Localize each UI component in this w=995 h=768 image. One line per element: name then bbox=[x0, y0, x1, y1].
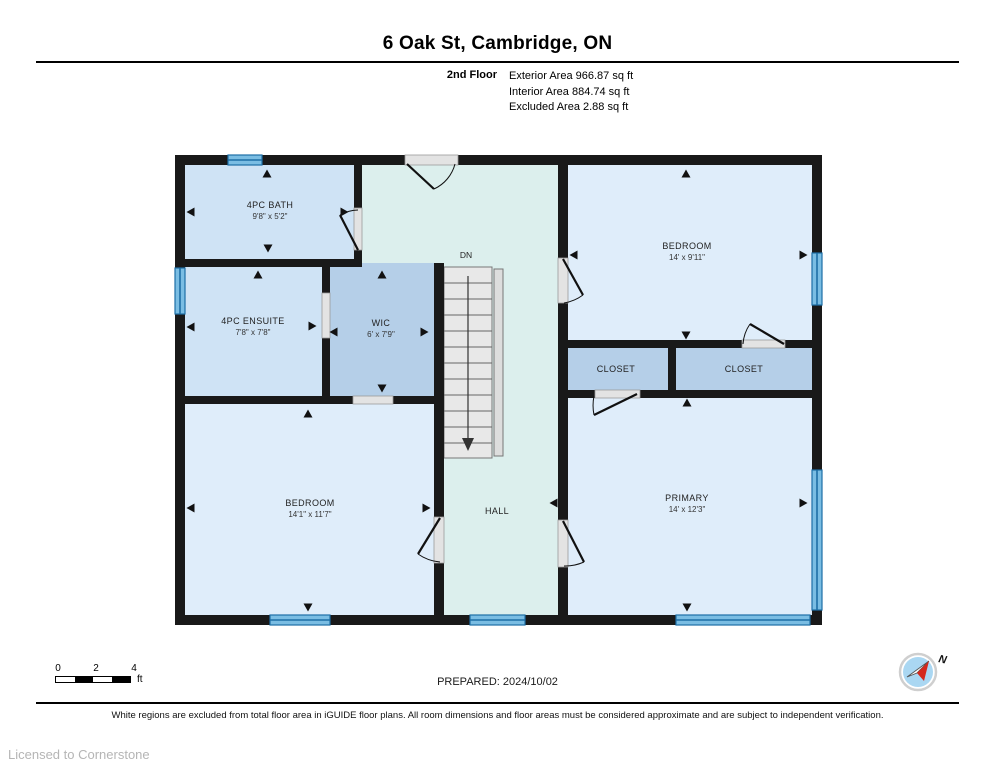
interior-area: Interior Area 884.74 sq ft bbox=[509, 85, 633, 101]
room-label-closet-l: CLOSET bbox=[597, 364, 636, 374]
room-dims-wic: 6' x 7'9" bbox=[367, 330, 395, 339]
room-label-hall: HALL bbox=[485, 506, 509, 516]
room-label-closet-r: CLOSET bbox=[725, 364, 764, 374]
room-dims-bath: 9'8" x 5'2" bbox=[253, 212, 288, 221]
stairs-handrail bbox=[494, 269, 503, 456]
room-label-bath: 4PC BATH bbox=[247, 200, 294, 210]
room-label-wic: WIC bbox=[372, 318, 391, 328]
scale-tick-4: 4 bbox=[131, 663, 137, 674]
excluded-area: Excluded Area 2.88 sq ft bbox=[509, 100, 633, 116]
window-bottom-hall bbox=[470, 615, 525, 625]
room-dims-bedroom-tr: 14' x 9'11" bbox=[669, 253, 705, 262]
compass-icon: N bbox=[894, 647, 952, 695]
area-summary: Exterior Area 966.87 sq ft Interior Area… bbox=[509, 69, 633, 116]
room-dims-bedroom-bl: 14'1" x 11'7" bbox=[288, 510, 331, 519]
window-bottom-primary bbox=[676, 615, 810, 625]
room-label-ensuite: 4PC ENSUITE bbox=[221, 316, 284, 326]
scale-tick-2: 2 bbox=[93, 663, 99, 674]
stairs bbox=[444, 267, 503, 458]
window-left-ensuite bbox=[175, 268, 185, 314]
room-label-primary: PRIMARY bbox=[665, 493, 709, 503]
window-top-bath bbox=[228, 155, 262, 165]
cased-opening-wic-bedroom bbox=[353, 396, 393, 404]
prepared-date: PREPARED: 2024/10/02 bbox=[0, 676, 995, 688]
window-right-primary bbox=[812, 470, 822, 610]
scale-tick-0: 0 bbox=[55, 663, 61, 674]
cased-opening-ensuite-wic bbox=[322, 293, 330, 338]
floorplan-page: 6 Oak St, Cambridge, ON 2nd Floor Exteri… bbox=[0, 0, 995, 768]
footer-divider bbox=[36, 702, 959, 704]
license-text: Licensed to Cornerstone bbox=[8, 747, 150, 762]
floor-label: 2nd Floor bbox=[447, 69, 497, 81]
disclaimer-text: White regions are excluded from total fl… bbox=[0, 710, 995, 721]
door-opening-hall-top bbox=[405, 155, 458, 165]
window-right-bedroom bbox=[812, 253, 822, 305]
floor-plan: 4PC BATH 9'8" x 5'2" 4PC ENSUITE 7'8" x … bbox=[170, 148, 830, 633]
page-title: 6 Oak St, Cambridge, ON bbox=[0, 33, 995, 55]
room-dims-ensuite: 7'8" x 7'8" bbox=[236, 328, 271, 337]
header-divider bbox=[36, 61, 959, 63]
stairs-dn-label: DN bbox=[460, 250, 472, 260]
room-label-bedroom-tr: BEDROOM bbox=[662, 241, 711, 251]
exterior-area: Exterior Area 966.87 sq ft bbox=[509, 69, 633, 85]
compass-north-label: N bbox=[937, 653, 948, 667]
room-label-bedroom-bl: BEDROOM bbox=[285, 498, 334, 508]
room-dims-primary: 14' x 12'3" bbox=[669, 505, 706, 514]
window-bottom-bedroom bbox=[270, 615, 330, 625]
